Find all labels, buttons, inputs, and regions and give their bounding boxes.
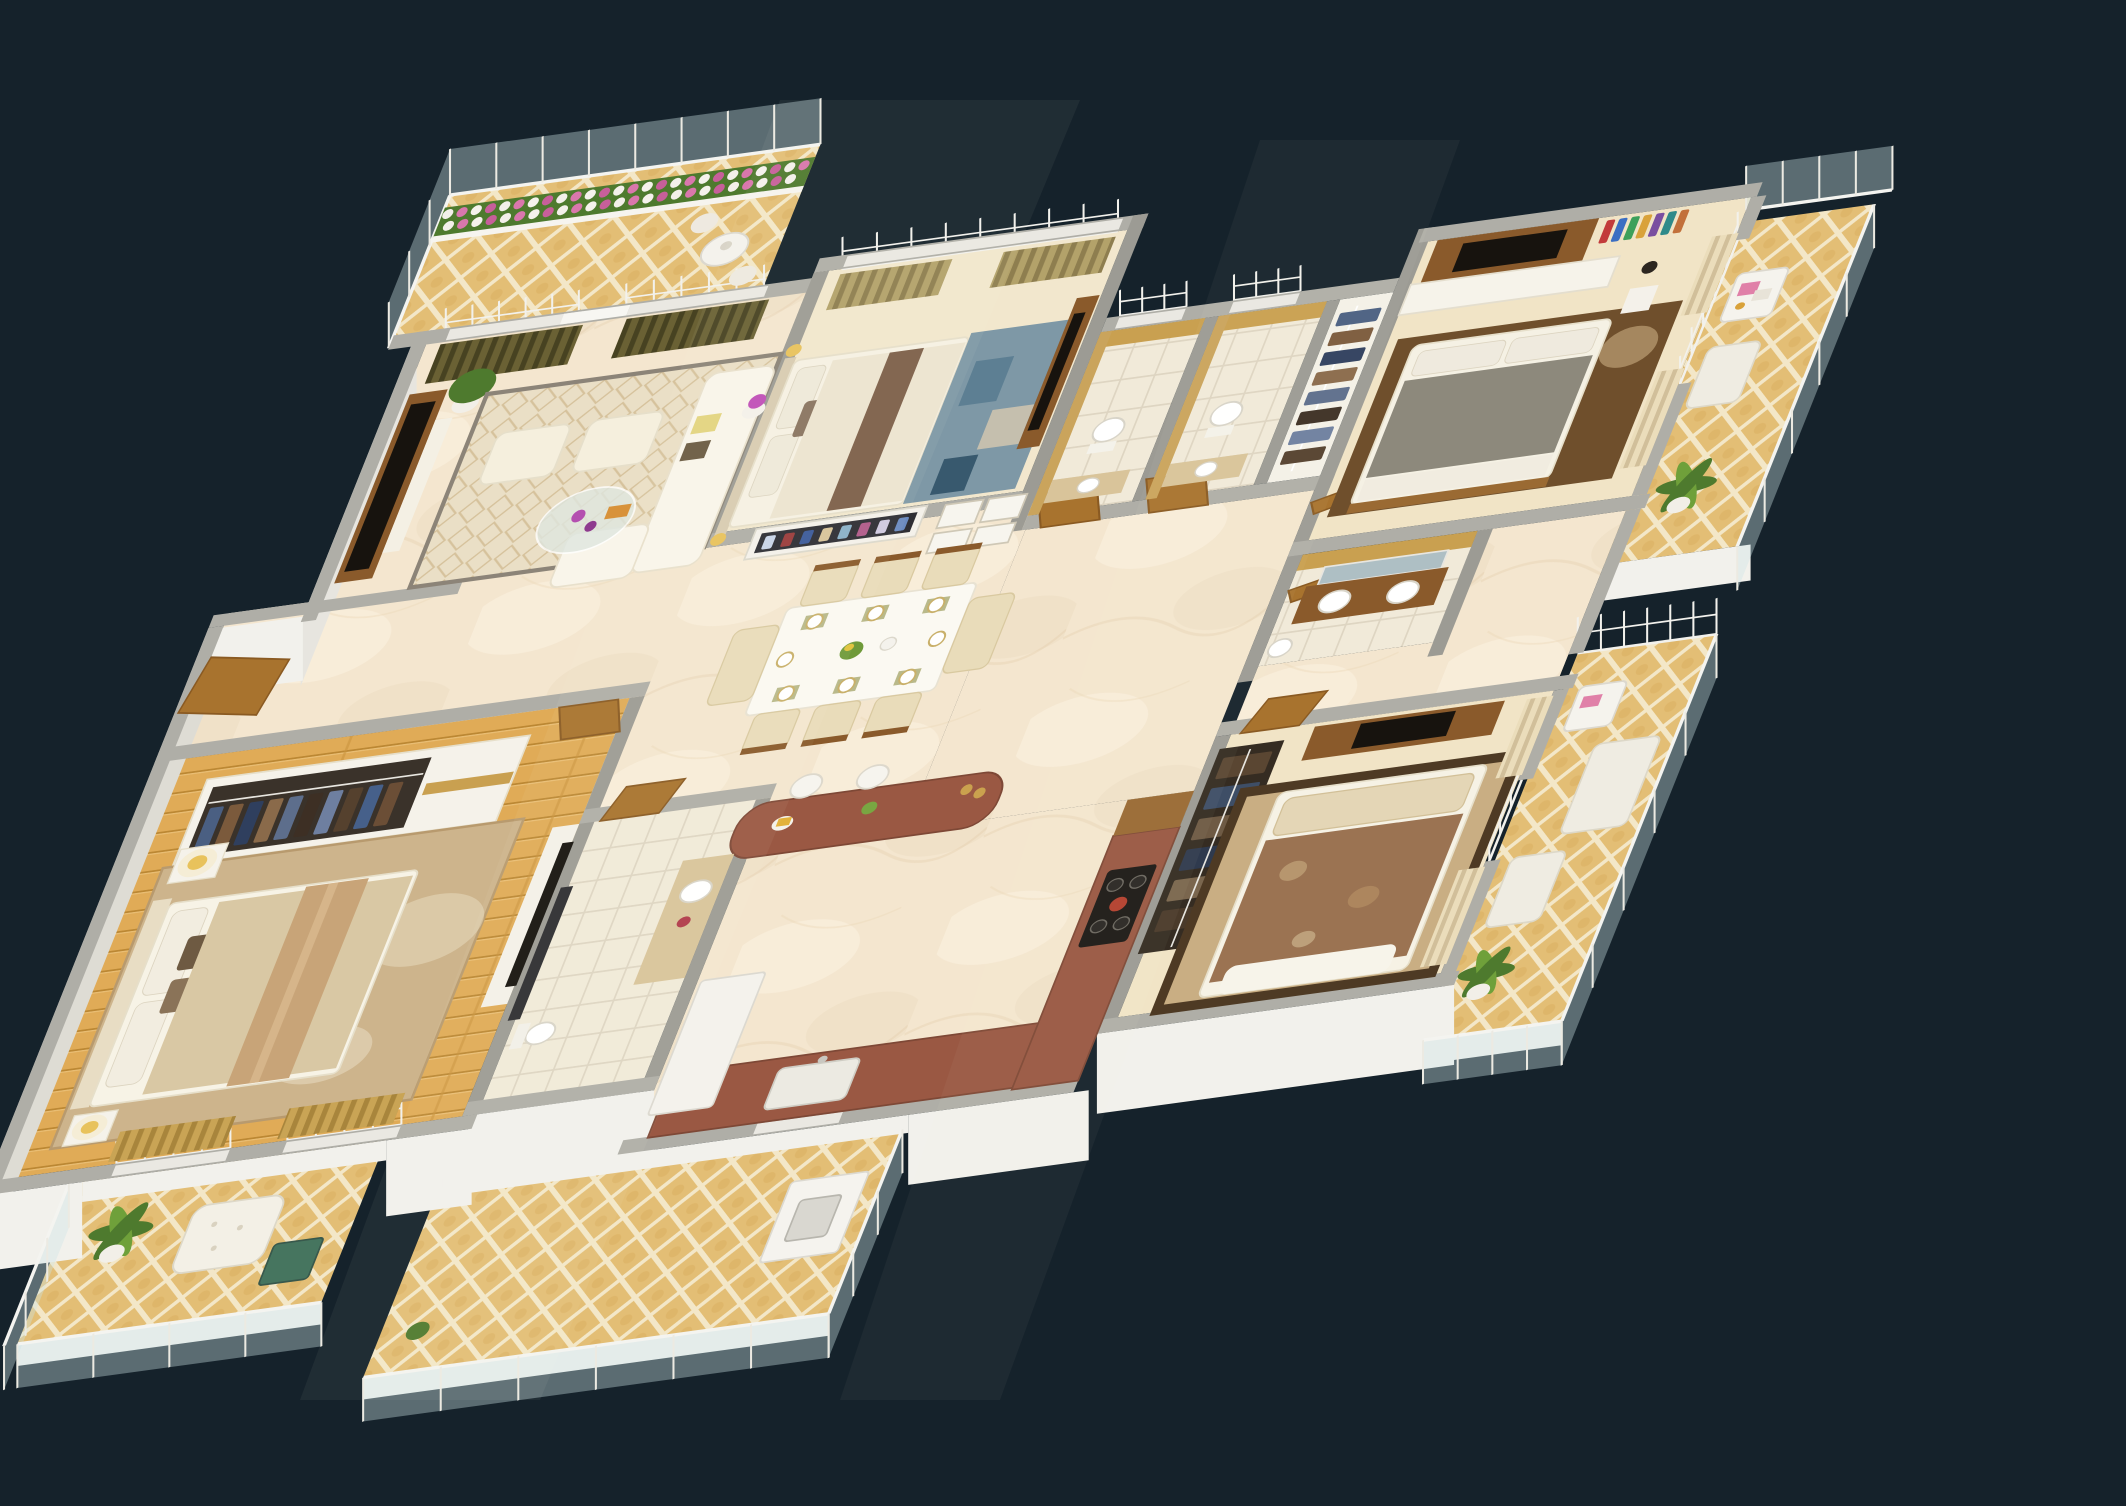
floor-plan-stage	[0, 0, 2126, 1506]
apartment-3d-floor-plan	[0, 0, 2126, 1506]
bath1-window-lattice-mid	[1120, 293, 1187, 302]
